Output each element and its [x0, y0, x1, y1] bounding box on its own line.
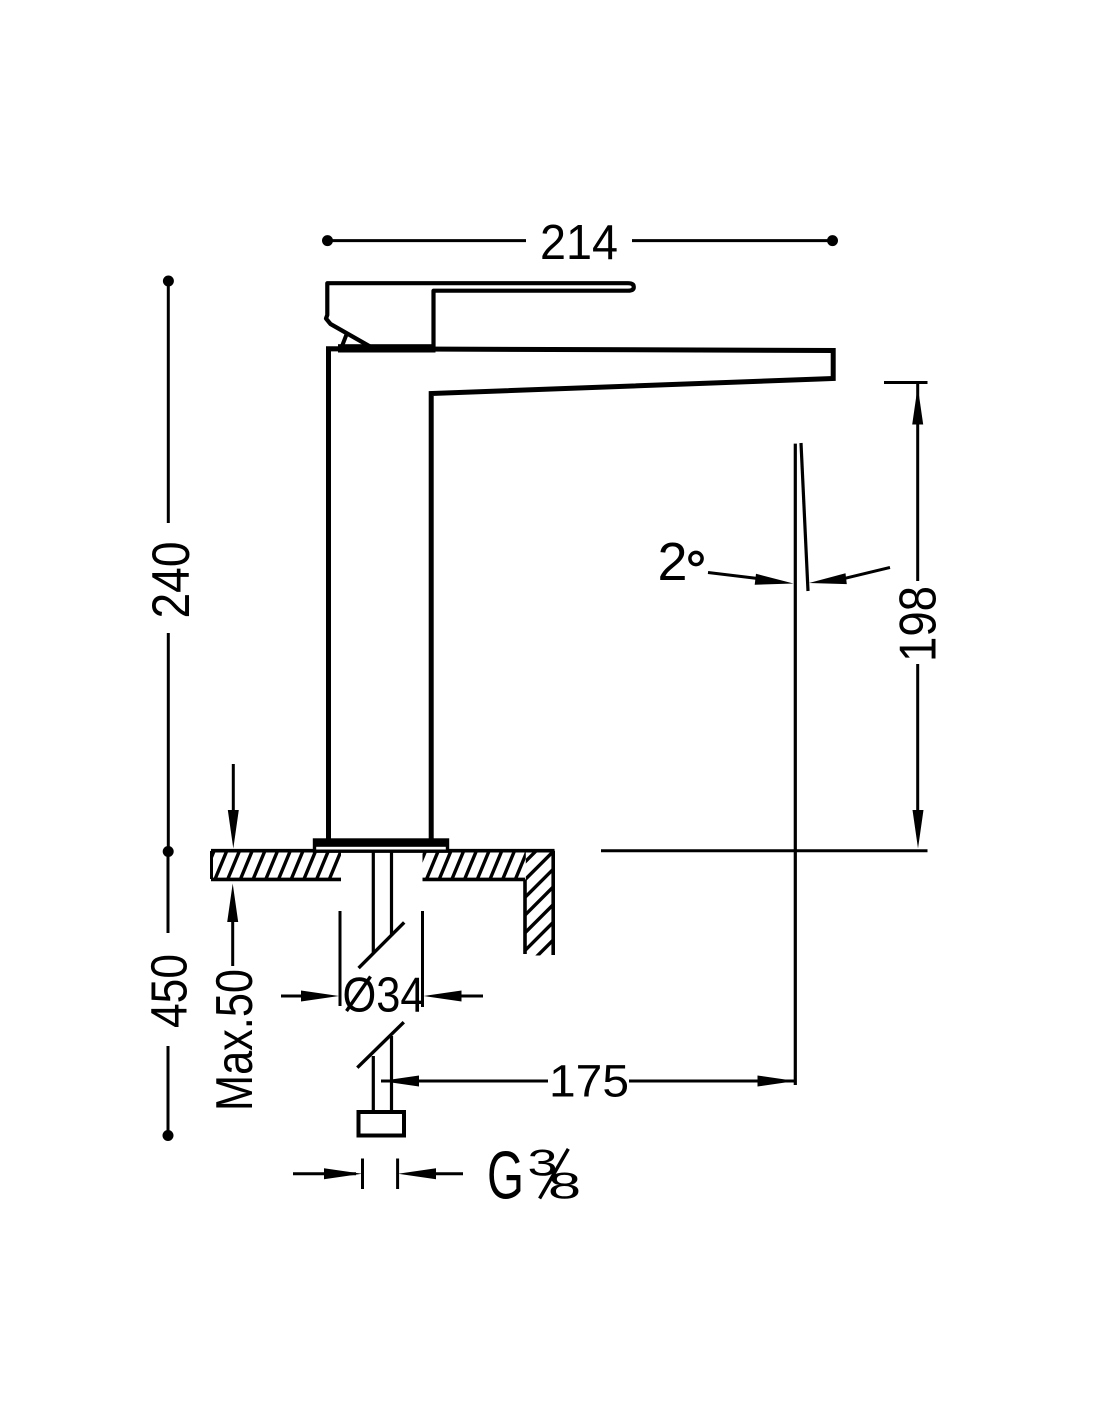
svg-text:240: 240	[142, 542, 201, 619]
svg-text:175: 175	[549, 1056, 629, 1107]
svg-text:G: G	[487, 1138, 524, 1214]
svg-text:198: 198	[890, 586, 948, 662]
svg-text:8: 8	[548, 1166, 581, 1207]
svg-text:2: 2	[658, 532, 688, 592]
svg-text:450: 450	[141, 954, 198, 1028]
svg-text:Max.50: Max.50	[206, 969, 264, 1111]
svg-text:214: 214	[540, 216, 618, 270]
svg-text:O34: O34	[343, 969, 425, 1023]
